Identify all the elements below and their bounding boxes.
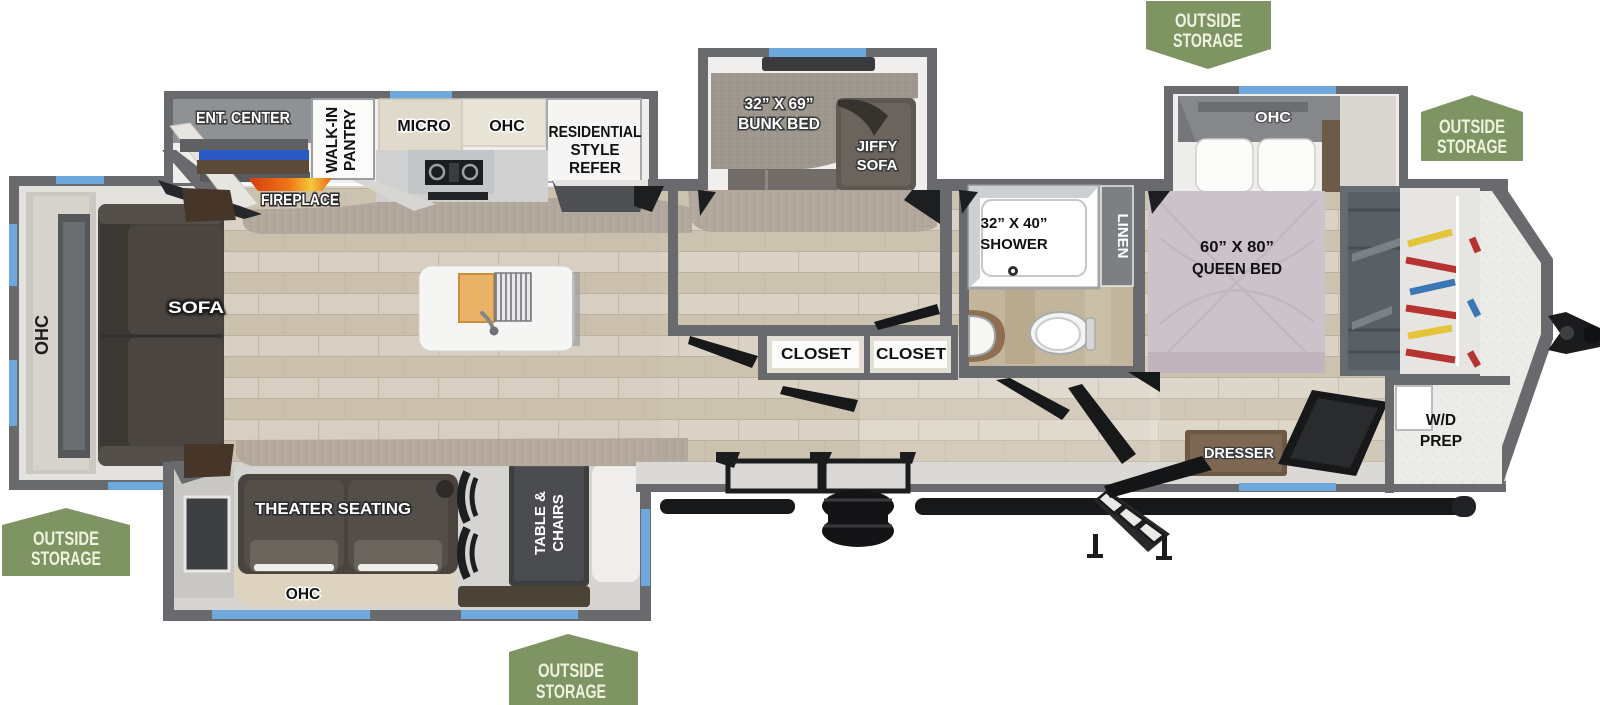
svg-text:BUNK BED: BUNK BED (738, 116, 820, 133)
svg-text:32” X 69”: 32” X 69” (745, 96, 814, 113)
svg-text:STORAGE: STORAGE (536, 682, 606, 703)
svg-text:REFER: REFER (569, 160, 621, 177)
svg-text:OUTSIDE: OUTSIDE (538, 661, 604, 682)
svg-text:TABLE &: TABLE & (532, 491, 549, 555)
svg-text:CLOSET: CLOSET (876, 346, 947, 363)
svg-text:OUTSIDE: OUTSIDE (1175, 11, 1241, 32)
svg-text:CLOSET: CLOSET (781, 346, 852, 363)
svg-text:SHOWER: SHOWER (980, 236, 1048, 253)
svg-text:PREP: PREP (1420, 433, 1462, 450)
svg-text:OUTSIDE: OUTSIDE (33, 529, 99, 550)
svg-text:MICRO: MICRO (397, 118, 450, 135)
svg-text:OHC: OHC (32, 315, 52, 355)
svg-text:32” X 40”: 32” X 40” (981, 215, 1048, 232)
svg-text:JIFFY: JIFFY (857, 138, 898, 155)
svg-text:PANTRY: PANTRY (342, 108, 359, 171)
svg-text:STORAGE: STORAGE (1173, 31, 1243, 52)
svg-text:SOFA: SOFA (168, 298, 224, 317)
svg-text:STORAGE: STORAGE (31, 549, 101, 570)
svg-text:ENT. CENTER: ENT. CENTER (196, 110, 290, 127)
svg-text:OHC: OHC (1255, 109, 1291, 126)
svg-text:60” X 80”: 60” X 80” (1200, 239, 1274, 256)
svg-text:OUTSIDE: OUTSIDE (1439, 117, 1505, 138)
svg-text:W/D: W/D (1426, 412, 1456, 429)
svg-text:THEATER SEATING: THEATER SEATING (255, 501, 411, 518)
svg-text:QUEEN BED: QUEEN BED (1192, 261, 1282, 278)
svg-text:LINEN: LINEN (1114, 214, 1131, 259)
svg-text:WALK-IN: WALK-IN (324, 107, 341, 173)
svg-text:STYLE: STYLE (571, 142, 620, 159)
svg-text:OHC: OHC (489, 118, 525, 135)
svg-text:DRESSER: DRESSER (1204, 446, 1275, 462)
svg-text:STORAGE: STORAGE (1437, 137, 1507, 158)
svg-text:SOFA: SOFA (857, 157, 898, 174)
svg-text:OHC: OHC (286, 586, 320, 603)
svg-text:FIREPLACE: FIREPLACE (261, 192, 339, 209)
svg-text:CHAIRS: CHAIRS (550, 494, 567, 552)
svg-text:RESIDENTIAL: RESIDENTIAL (549, 124, 642, 141)
